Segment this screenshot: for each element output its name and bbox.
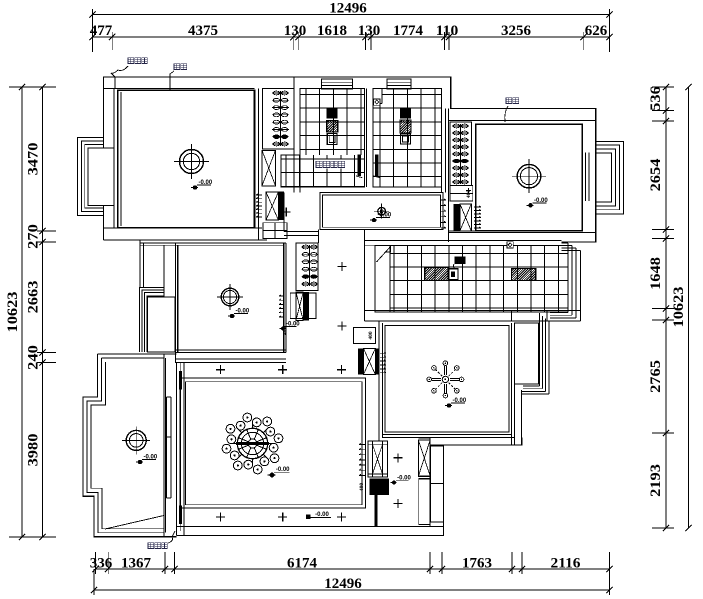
svg-text:10623: 10623 — [5, 292, 21, 333]
svg-text:110: 110 — [436, 23, 459, 39]
svg-text:-0.00: -0.00 — [199, 180, 213, 186]
svg-text:10623: 10623 — [671, 287, 687, 328]
svg-text:2663: 2663 — [26, 281, 42, 314]
svg-text:-0.00: -0.00 — [378, 213, 392, 219]
svg-text:400: 400 — [359, 483, 365, 492]
svg-text:2193: 2193 — [648, 464, 664, 497]
svg-text:3470: 3470 — [26, 143, 42, 176]
svg-text:477: 477 — [90, 23, 113, 39]
svg-text:1763: 1763 — [462, 556, 492, 572]
svg-text:626: 626 — [585, 23, 608, 39]
svg-text:536: 536 — [648, 86, 664, 111]
svg-text:-0.00: -0.00 — [144, 455, 158, 461]
svg-text:270: 270 — [26, 224, 42, 249]
svg-text:2765: 2765 — [648, 360, 664, 393]
svg-text:12496: 12496 — [324, 576, 362, 592]
svg-text:-0.00: -0.00 — [397, 475, 411, 481]
svg-text:4375: 4375 — [188, 23, 218, 39]
svg-text:1367: 1367 — [121, 556, 152, 572]
svg-text:336: 336 — [90, 556, 113, 572]
svg-text:3980: 3980 — [26, 434, 42, 467]
svg-text:6174: 6174 — [287, 556, 318, 572]
svg-text:1648: 1648 — [648, 257, 664, 290]
svg-text:-0.00: -0.00 — [286, 322, 300, 328]
svg-text:-0.00: -0.00 — [236, 309, 250, 315]
svg-text:-0.00: -0.00 — [534, 198, 548, 204]
svg-text:240: 240 — [26, 345, 42, 370]
svg-text:1774: 1774 — [393, 23, 424, 39]
svg-text:130: 130 — [284, 23, 307, 39]
svg-text:12496: 12496 — [329, 1, 367, 17]
svg-text:-0.00: -0.00 — [453, 398, 467, 404]
svg-text:400: 400 — [368, 331, 374, 340]
svg-text:400: 400 — [283, 327, 289, 336]
svg-text:2116: 2116 — [551, 556, 581, 572]
svg-text:2654: 2654 — [648, 158, 664, 191]
svg-text:3256: 3256 — [501, 23, 532, 39]
svg-text:130: 130 — [358, 23, 381, 39]
svg-text:-0.00: -0.00 — [276, 467, 290, 473]
svg-text:1618: 1618 — [317, 23, 347, 39]
